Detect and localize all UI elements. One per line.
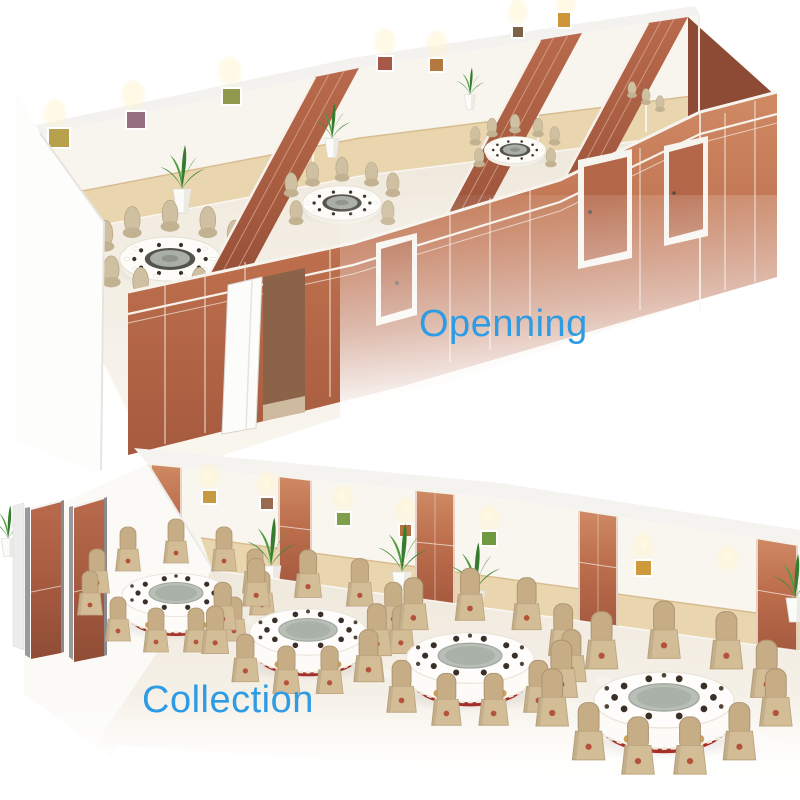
picture [429, 58, 444, 72]
picture [557, 12, 571, 28]
picture [635, 560, 652, 576]
picture [336, 512, 351, 526]
label-openning: Openning [419, 303, 588, 346]
track-panel [13, 503, 24, 650]
label-collection: Collection [142, 679, 314, 722]
picture [202, 490, 217, 504]
door-knob [672, 191, 676, 195]
product-image: Openning Collection [0, 0, 800, 800]
picture [481, 531, 497, 546]
open-door-leaf [222, 277, 262, 434]
picture [512, 26, 524, 38]
open-doorway [222, 268, 305, 434]
picture [48, 128, 70, 148]
scene-partitions-open [16, 0, 800, 476]
picture [260, 497, 274, 510]
render-canvas [0, 0, 800, 800]
picture [377, 56, 393, 71]
scene-partitions-collected [0, 448, 800, 800]
picture [126, 111, 146, 129]
wall-pilaster-4 [578, 510, 618, 626]
picture [222, 88, 241, 105]
wall-pilaster-5 [756, 538, 798, 651]
folded-panel [31, 501, 61, 659]
